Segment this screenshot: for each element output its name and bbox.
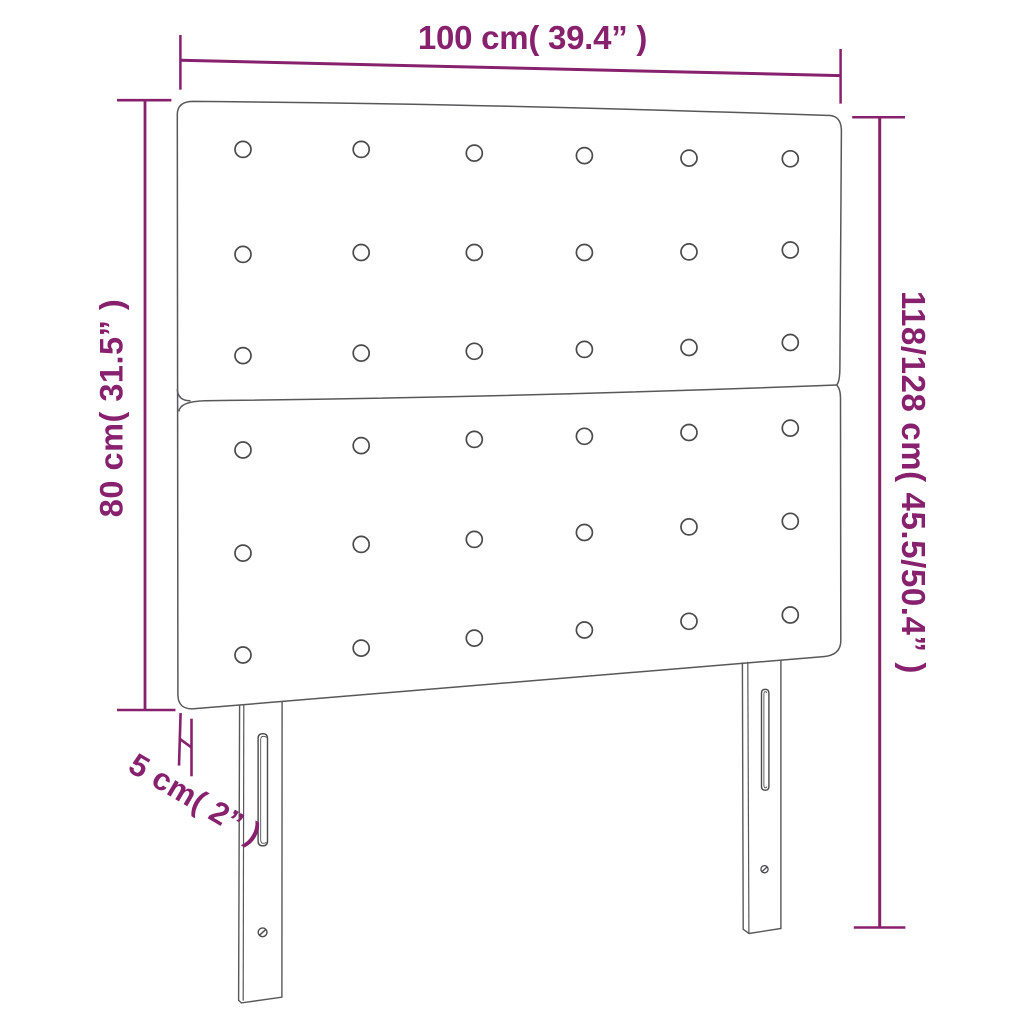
svg-text:5 cm( 2” ): 5 cm( 2” ) xyxy=(123,746,268,851)
svg-text:80 cm( 31.5” ): 80 cm( 31.5” ) xyxy=(94,299,130,517)
svg-text:118/128 cm( 45.5/50.4” ): 118/128 cm( 45.5/50.4” ) xyxy=(895,291,932,674)
svg-text:100 cm( 39.4” ): 100 cm( 39.4” ) xyxy=(418,19,647,56)
